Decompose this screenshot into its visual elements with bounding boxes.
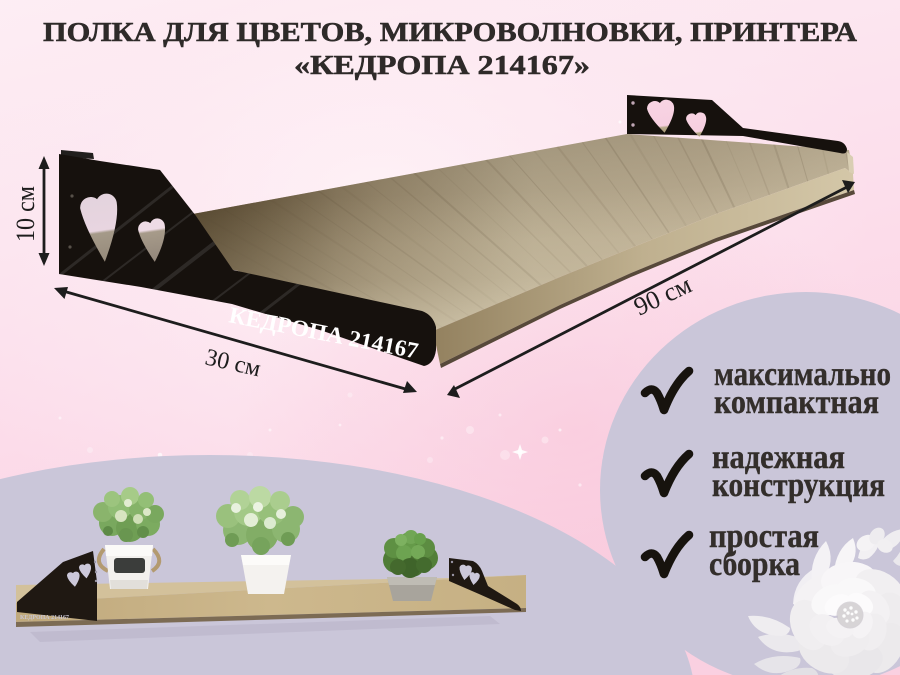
svg-text:конструкция: конструкция [712,467,885,504]
svg-text:КЕДРОПА 214167: КЕДРОПА 214167 [20,614,70,621]
svg-text:компактная: компактная [714,384,879,421]
svg-text:10 см: 10 см [11,186,40,242]
svg-text:«КЕДРОПА 214167»: «КЕДРОПА 214167» [294,50,590,80]
svg-text:ПОЛКА ДЛЯ ЦВЕТОВ, МИКРОВОЛНОВК: ПОЛКА ДЛЯ ЦВЕТОВ, МИКРОВОЛНОВКИ, ПРИНТЕР… [43,17,858,47]
svg-text:сборка: сборка [709,546,800,583]
